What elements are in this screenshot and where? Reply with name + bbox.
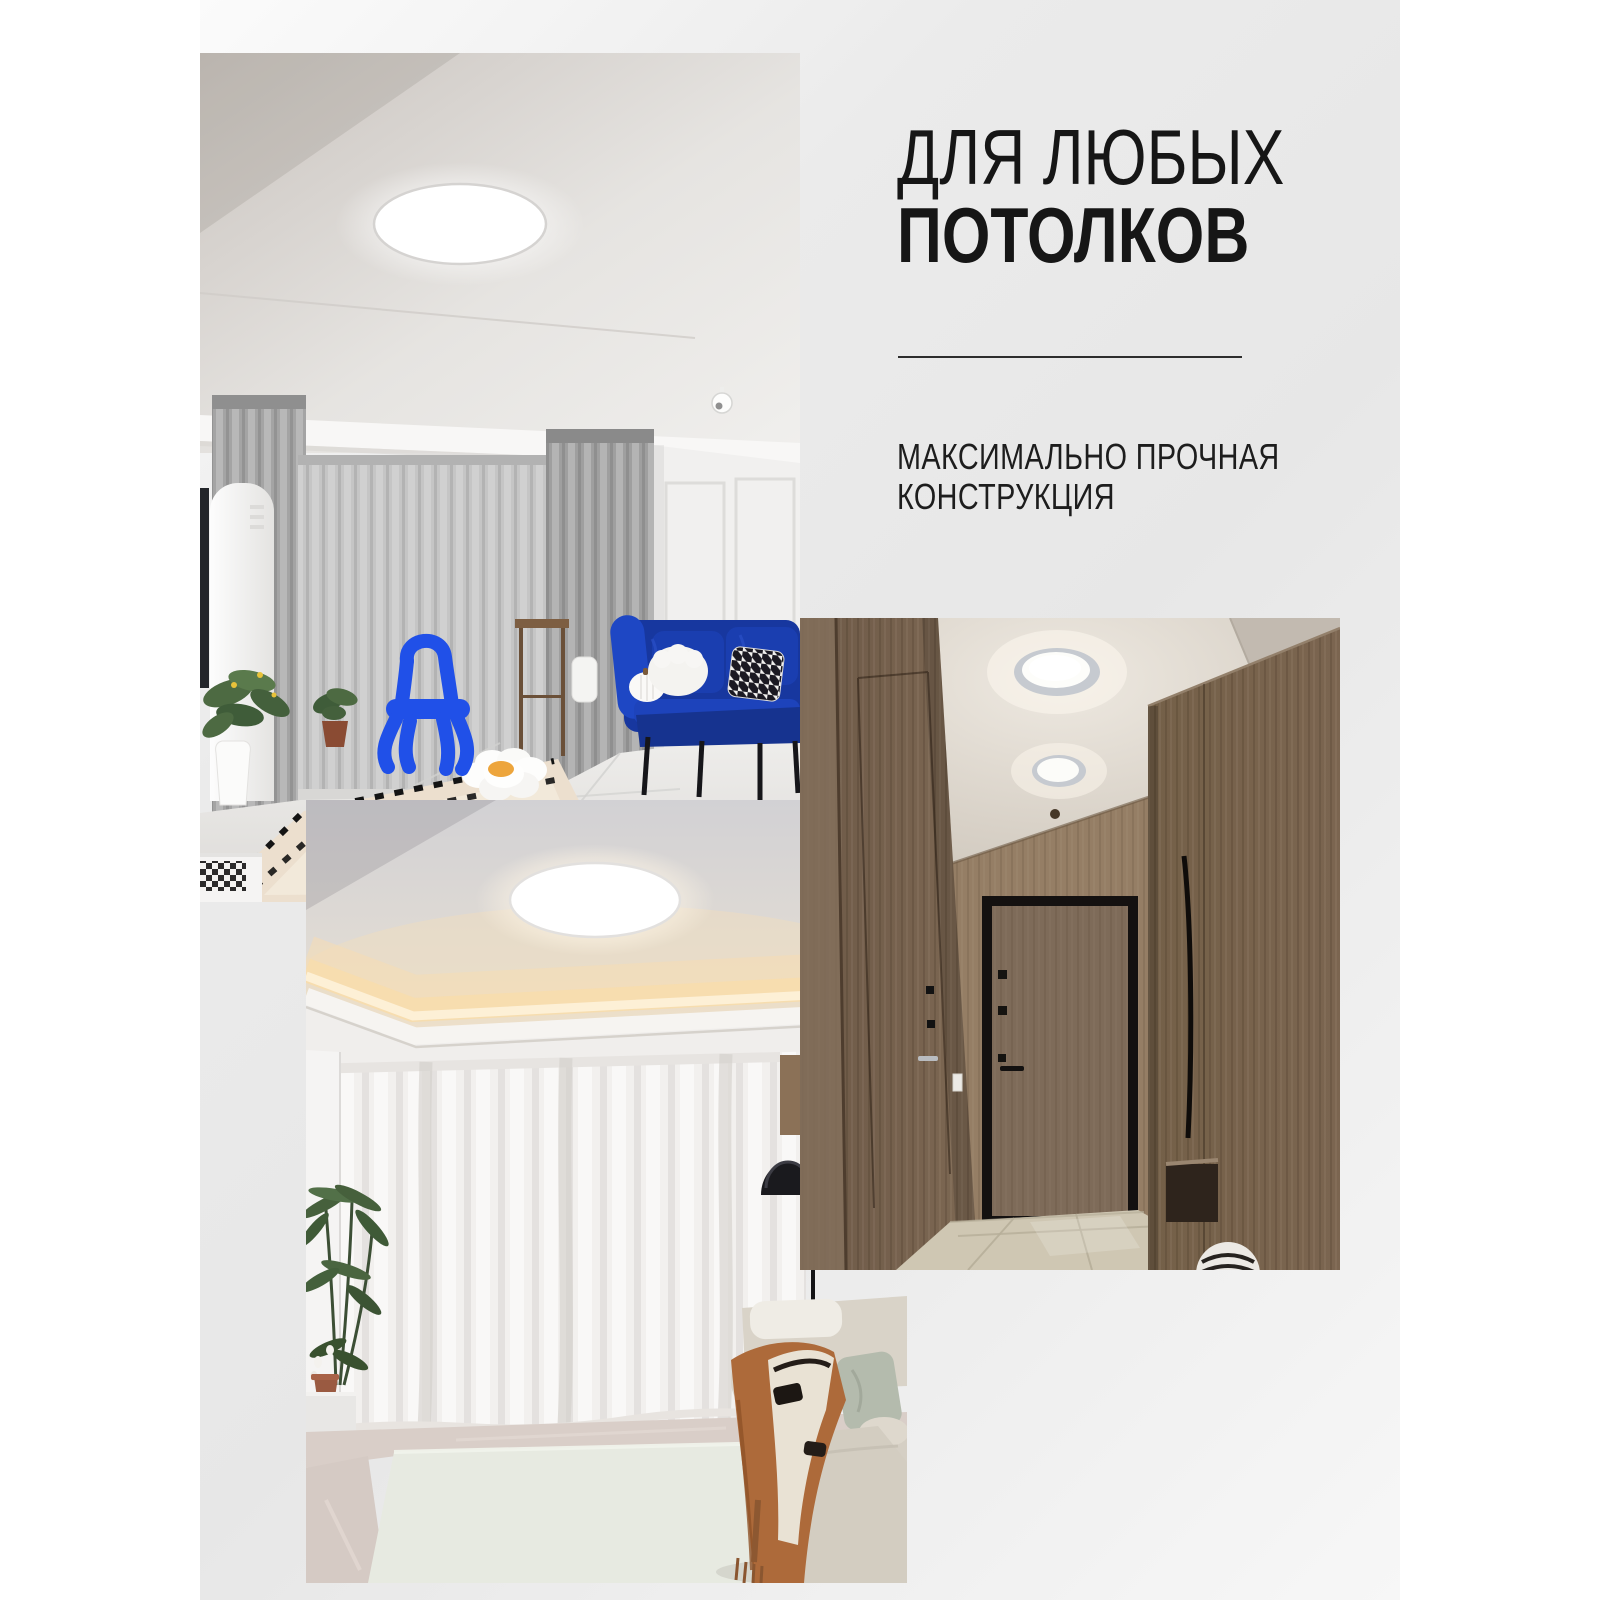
ceiling-light [335, 162, 585, 286]
text-block: ДЛЯ ЛЮБЫХ ПОТОЛКОВ МАКСИМАЛЬНО ПРОЧНАЯ К… [897, 0, 1377, 560]
photo-hallway [800, 618, 1340, 1270]
door-handle-icon [1000, 1066, 1024, 1071]
ceiling-light-large [987, 630, 1127, 714]
hallway-illustration [800, 618, 1340, 1270]
page: { "banner": { "headline": { "line1": "ДЛ… [0, 0, 1600, 1600]
light-switch [953, 1074, 962, 1091]
banner-canvas: ДЛЯ ЛЮБЫХ ПОТОЛКОВ МАКСИМАЛЬНО ПРОЧНАЯ К… [200, 0, 1400, 1600]
tv-edge [200, 488, 209, 688]
living-room-illustration [200, 53, 800, 902]
chrome-handle-icon [918, 1056, 938, 1061]
divider-line [898, 356, 1242, 358]
white-bin [572, 657, 597, 702]
shelf-niche [1166, 1160, 1218, 1222]
headline-line1: ДЛЯ ЛЮБЫХ [897, 118, 1284, 196]
subtitle: МАКСИМАЛЬНО ПРОЧНАЯ КОНСТРУКЦИЯ [897, 437, 1280, 517]
photo-living-room [200, 53, 800, 902]
ceiling-light [475, 844, 715, 956]
tv-cabinet [200, 853, 262, 902]
subtitle-line2: КОНСТРУКЦИЯ [897, 477, 1280, 517]
subtitle-line1: МАКСИМАЛЬНО ПРОЧНАЯ [897, 437, 1280, 477]
ceiling-light-small [1011, 743, 1107, 799]
entry-door [982, 896, 1138, 1226]
wardrobe [1148, 628, 1340, 1270]
headline: ДЛЯ ЛЮБЫХ ПОТОЛКОВ [897, 118, 1284, 274]
headline-line2: ПОТОЛКОВ [897, 196, 1284, 274]
